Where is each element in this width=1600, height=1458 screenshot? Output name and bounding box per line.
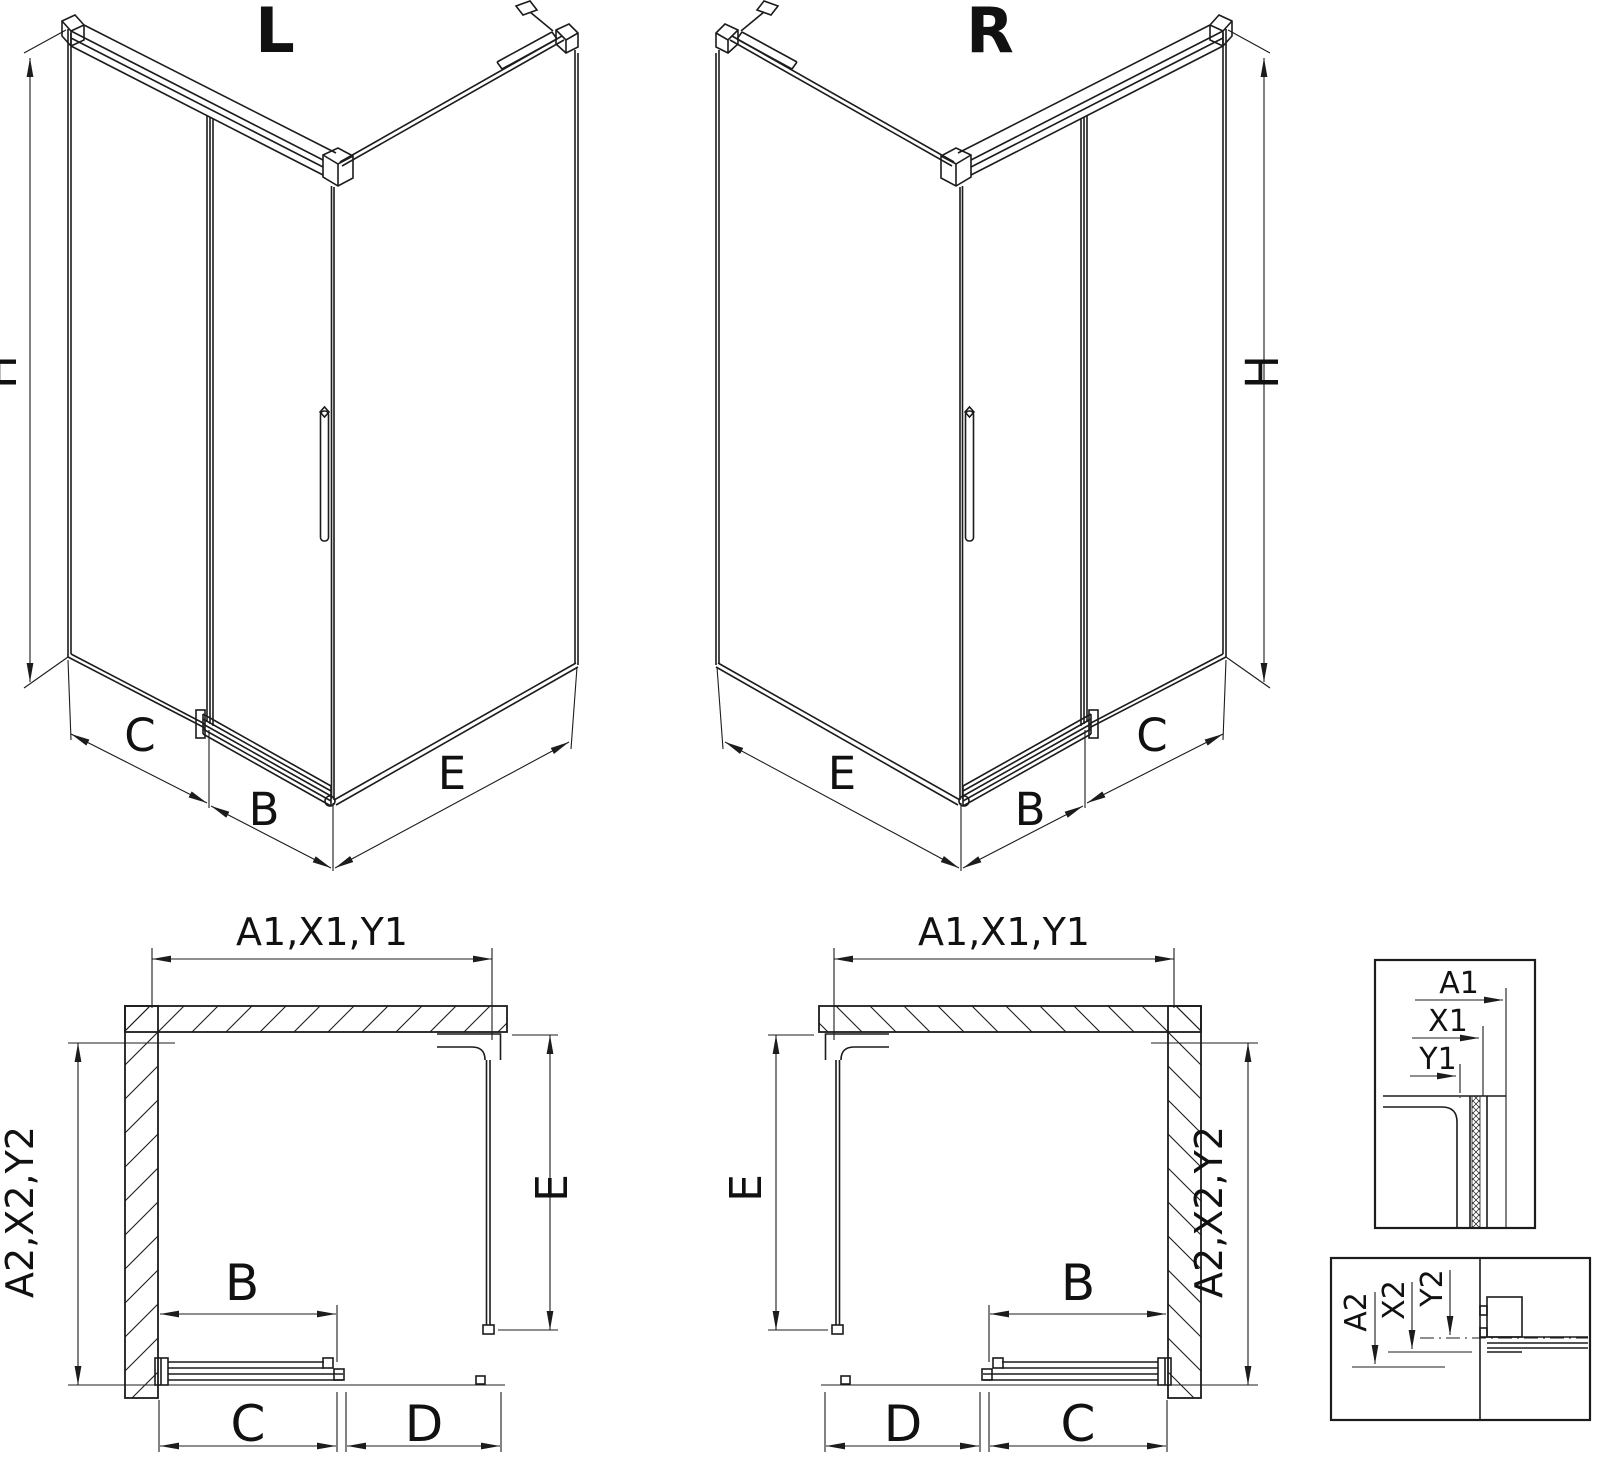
iso-left-dim-e: E — [438, 747, 466, 800]
plan-left-dim-top: A1,X1,Y1 — [236, 910, 408, 954]
plan-left-dim-right: E — [527, 1174, 578, 1202]
iso-right-dim-c: C — [1136, 709, 1167, 762]
plan-left-geometry — [68, 948, 558, 1452]
iso-right-geometry — [716, 1, 1270, 871]
plan-left-dim-bottom-right: D — [405, 1395, 444, 1453]
detail-box-bottom: A2 X2 Y2 — [1331, 1258, 1590, 1420]
plan-right-geometry — [768, 948, 1258, 1452]
detail-bottom-label-y2: Y2 — [1415, 1269, 1450, 1307]
plan-right-dim-door: B — [1061, 1254, 1095, 1312]
iso-right-dim-e: E — [828, 747, 856, 800]
shower-enclosure-technical-drawing: L H C B E R H E B C A1,X1,Y1 A2,X2,Y2 E … — [0, 0, 1600, 1458]
detail-top-label-y1: Y1 — [1418, 1042, 1456, 1077]
detail-box-top: A1 X1 Y1 — [1375, 960, 1535, 1228]
plan-right-dim-right: A2,X2,Y2 — [1187, 1126, 1231, 1298]
iso-left-dim-height: H — [0, 355, 27, 389]
plan-view-left: A1,X1,Y1 A2,X2,Y2 E B C D — [0, 910, 578, 1453]
plan-left-dim-bottom-left: C — [231, 1395, 266, 1453]
iso-right-title: R — [966, 0, 1014, 67]
iso-view-right: R H E B C — [716, 0, 1289, 871]
plan-right-dim-top: A1,X1,Y1 — [918, 910, 1090, 954]
plan-view-right: A1,X1,Y1 E A2,X2,Y2 B D C — [721, 910, 1258, 1453]
detail-top-label-x1: X1 — [1428, 1004, 1468, 1039]
iso-right-dim-b: B — [1015, 783, 1046, 836]
iso-left-title: L — [255, 0, 295, 67]
iso-left-dim-b: B — [249, 783, 280, 836]
plan-right-dim-bottom-left: D — [884, 1395, 923, 1453]
iso-right-dim-height: H — [1236, 355, 1289, 389]
glass-seal-section — [1472, 1096, 1480, 1228]
technical-drawing-canvas: L H C B E R H E B C A1,X1,Y1 A2,X2,Y2 E … — [0, 0, 1600, 1458]
detail-bottom-label-a2: A2 — [1339, 1292, 1374, 1332]
detail-top-label-a1: A1 — [1439, 966, 1479, 1001]
plan-left-dim-door: B — [225, 1254, 259, 1312]
iso-left-dim-c: C — [124, 709, 155, 762]
plan-right-dim-left: E — [721, 1174, 772, 1202]
iso-view-left: L H C B E — [0, 0, 578, 871]
plan-left-dim-left: A2,X2,Y2 — [0, 1126, 42, 1298]
iso-left-geometry — [24, 1, 578, 871]
plan-right-dim-bottom-right: C — [1061, 1395, 1096, 1453]
detail-bottom-label-x2: X2 — [1377, 1280, 1412, 1320]
